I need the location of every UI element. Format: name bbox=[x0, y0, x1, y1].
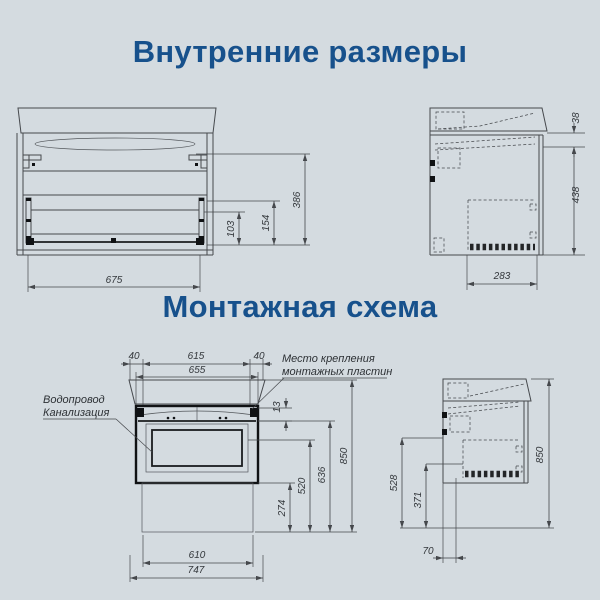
dim-850-side-label: 850 bbox=[535, 446, 546, 463]
dim-70-label: 70 bbox=[422, 546, 434, 557]
internal-front-view-drawing: 675 386 154 103 bbox=[8, 100, 320, 300]
dim-610-label: 610 bbox=[189, 550, 206, 561]
wall-clearance-hatch bbox=[142, 483, 253, 532]
plates-label-line2: монтажных пластин bbox=[282, 366, 392, 378]
section-title-internal-dimensions: Внутренние размеры bbox=[0, 34, 600, 70]
dim-283-label: 283 bbox=[493, 271, 511, 282]
mounting-plate-left bbox=[136, 408, 144, 417]
drawer-front-hatch bbox=[152, 430, 242, 466]
dim-40-right-label: 40 bbox=[253, 351, 265, 362]
dim-655-label: 655 bbox=[189, 365, 206, 376]
dim-528-label: 528 bbox=[389, 474, 400, 491]
dim-back-offset: 70 bbox=[422, 478, 466, 563]
dim-mounting-widths: 610 747 bbox=[130, 535, 263, 582]
mounting-side-view-drawing: 850 528 371 70 bbox=[390, 360, 575, 575]
dim-747-label: 747 bbox=[188, 565, 205, 576]
dim-438-label: 438 bbox=[571, 186, 582, 203]
dim-cabinet-width: 655 bbox=[136, 365, 258, 406]
dim-615-label: 615 bbox=[188, 351, 205, 362]
water-supply-label: Водопровод bbox=[43, 394, 105, 406]
dim-520-label: 520 bbox=[297, 477, 308, 494]
dim-front-width: 675 bbox=[28, 255, 200, 292]
dim-40-left-label: 40 bbox=[128, 351, 140, 362]
dim-675-label: 675 bbox=[106, 275, 123, 286]
dim-plate-drop: 13 bbox=[258, 398, 292, 431]
dim-side-depth: 283 bbox=[467, 255, 537, 290]
section-title-mounting-scheme: Монтажная схема bbox=[0, 289, 600, 325]
dim-side-height: 438 bbox=[543, 147, 585, 255]
dim-mounting-heights: 274 520 636 850 bbox=[248, 380, 357, 532]
label-mounting-plates: Место крепления монтажных пластин bbox=[252, 353, 392, 409]
dim-154-label: 154 bbox=[261, 214, 272, 231]
plates-label-line1: Место крепления bbox=[282, 353, 375, 365]
dim-371-label: 371 bbox=[413, 492, 424, 509]
cabinet-front-outline bbox=[17, 108, 216, 255]
internal-side-view-drawing: 38 438 283 bbox=[420, 100, 595, 298]
sewerage-label: Канализация bbox=[43, 407, 109, 419]
dim-plate-offsets: 40 615 40 bbox=[121, 351, 272, 405]
mounting-front-view-drawing: 40 615 40 655 Водопровод Канализация Мес… bbox=[30, 345, 390, 593]
dim-274-label: 274 bbox=[277, 499, 288, 517]
technical-drawing-page: { "page": { "background_color": "#d4dbe0… bbox=[0, 0, 600, 600]
cabinet-mounting-front bbox=[129, 380, 265, 532]
dim-side-top-drop: 38 bbox=[543, 112, 585, 157]
dim-13-label: 13 bbox=[272, 401, 283, 413]
basin-outline bbox=[35, 138, 195, 150]
dim-386-label: 386 bbox=[292, 191, 303, 208]
dim-38-label: 38 bbox=[571, 112, 582, 124]
drawer-slides bbox=[23, 155, 207, 245]
cabinet-mounting-side bbox=[442, 379, 531, 483]
dim-103-label: 103 bbox=[226, 220, 237, 237]
cabinet-side-internals bbox=[430, 112, 536, 252]
mounting-plate-right bbox=[250, 408, 258, 417]
cabinet-side-outline bbox=[430, 108, 547, 255]
dim-850-label: 850 bbox=[339, 447, 350, 464]
dim-636-label: 636 bbox=[317, 466, 328, 483]
